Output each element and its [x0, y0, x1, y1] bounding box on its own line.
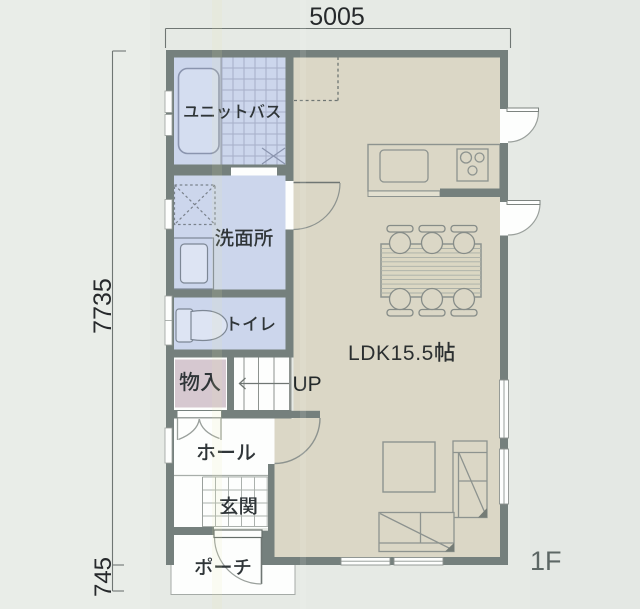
svg-text:1F: 1F	[530, 546, 562, 576]
svg-text:7735: 7735	[89, 278, 117, 334]
svg-text:UP: UP	[293, 373, 322, 396]
svg-text:LDK15.5: LDK15.5	[348, 342, 434, 365]
svg-text:5005: 5005	[309, 3, 365, 31]
svg-text:745: 745	[90, 557, 117, 597]
